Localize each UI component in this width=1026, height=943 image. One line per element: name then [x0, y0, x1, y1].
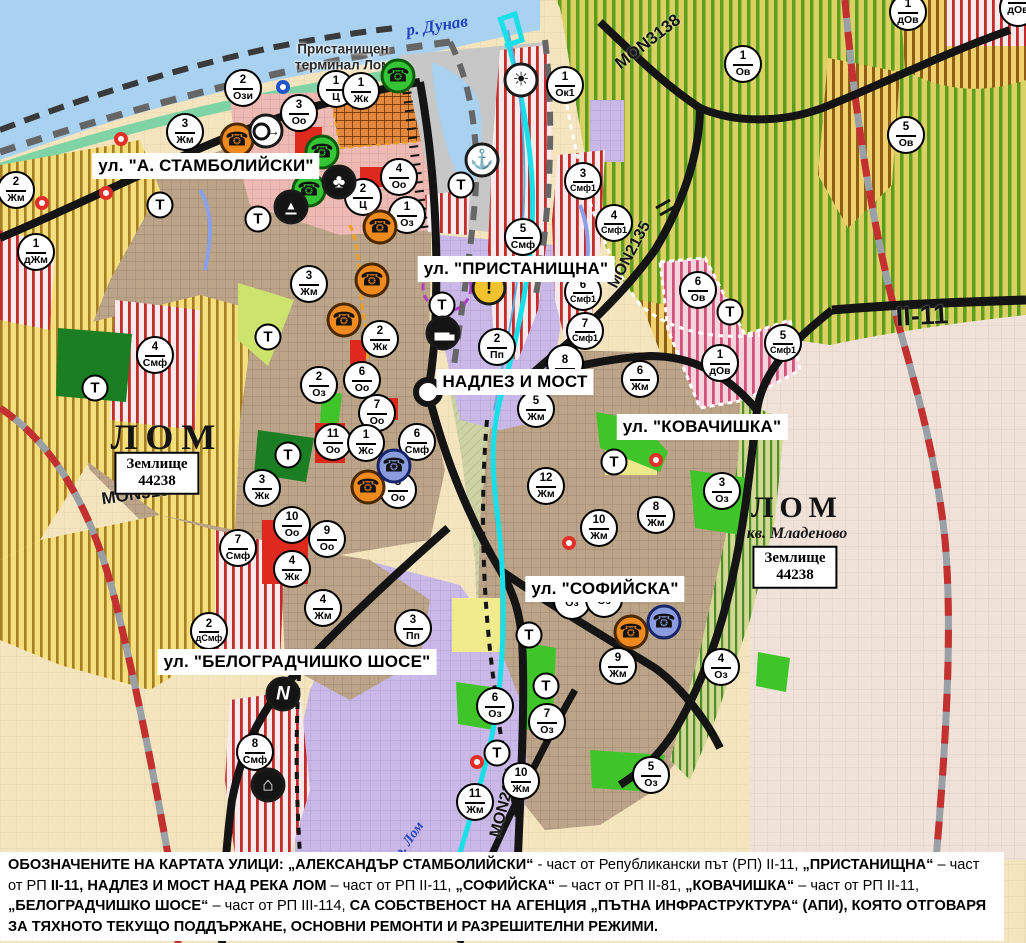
land-registry-box-left: Землище 44238: [114, 452, 199, 495]
quarter-name: кв. Младеново: [747, 525, 848, 543]
port-terminal-line1: Пристанищен: [297, 41, 388, 56]
zoning-map-screenshot: MON3138MON2135II-11MON3139MON2136 2Жм1дЖ…: [0, 0, 1026, 943]
city-label-lom: ЛОМ: [111, 419, 224, 455]
land-registry-box-right: Землище 44238: [752, 546, 837, 589]
registry-line1: Землище: [764, 550, 825, 566]
registry-line2: 44238: [776, 567, 814, 583]
port-terminal-label: Пристанищен терминал Лом: [295, 41, 391, 72]
city-label-lom-mladenovo: ЛОМ кв. Младеново: [747, 493, 848, 543]
caption-text: ОБОЗНАЧЕНИТЕ НА КАРТАТА УЛИЦИ: „АЛЕКСАНД…: [8, 855, 996, 938]
caption: ОБОЗНАЧЕНИТЕ НА КАРТАТА УЛИЦИ: „АЛЕКСАНД…: [0, 852, 1004, 941]
port-terminal-line2: терминал Лом: [295, 57, 391, 72]
city-name: ЛОМ: [751, 491, 843, 524]
registry-line2: 44238: [138, 473, 176, 489]
registry-line1: Землище: [126, 456, 187, 472]
